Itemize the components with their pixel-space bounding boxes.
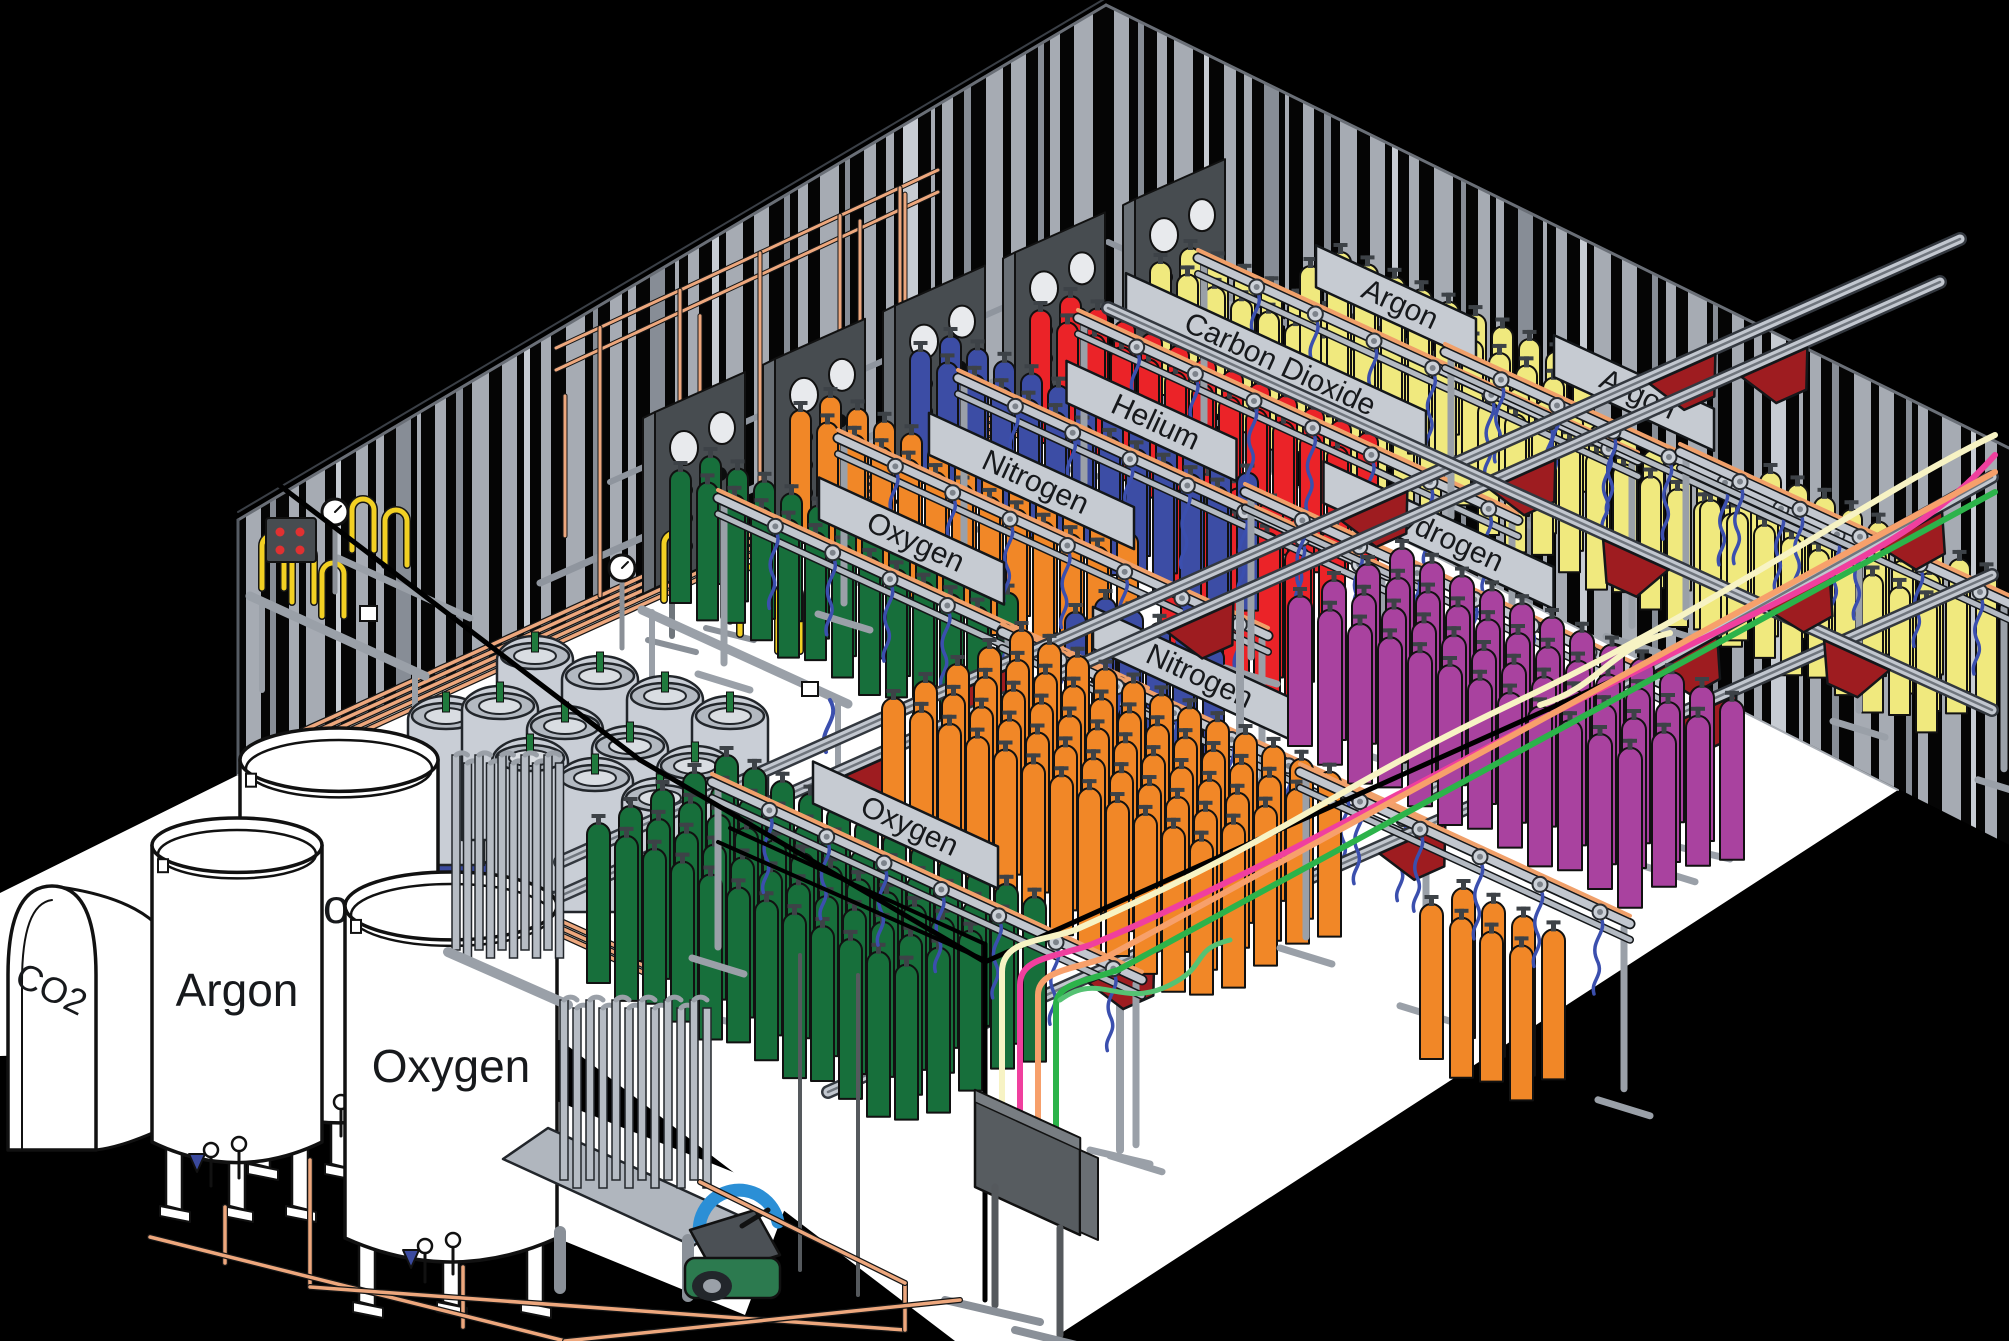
bulk-tank-label: Oxygen <box>372 1040 531 1092</box>
isometric-scene: ArgonCarbon DioxideHeliumNitrogenOxygenA… <box>0 0 2009 1341</box>
bulk-tank-label: Argon <box>176 964 299 1016</box>
gas-plant-illustration: ArgonCarbon DioxideHeliumNitrogenOxygenA… <box>0 0 2009 1341</box>
bulk-tank-argon-tank: Argon <box>152 818 322 1222</box>
